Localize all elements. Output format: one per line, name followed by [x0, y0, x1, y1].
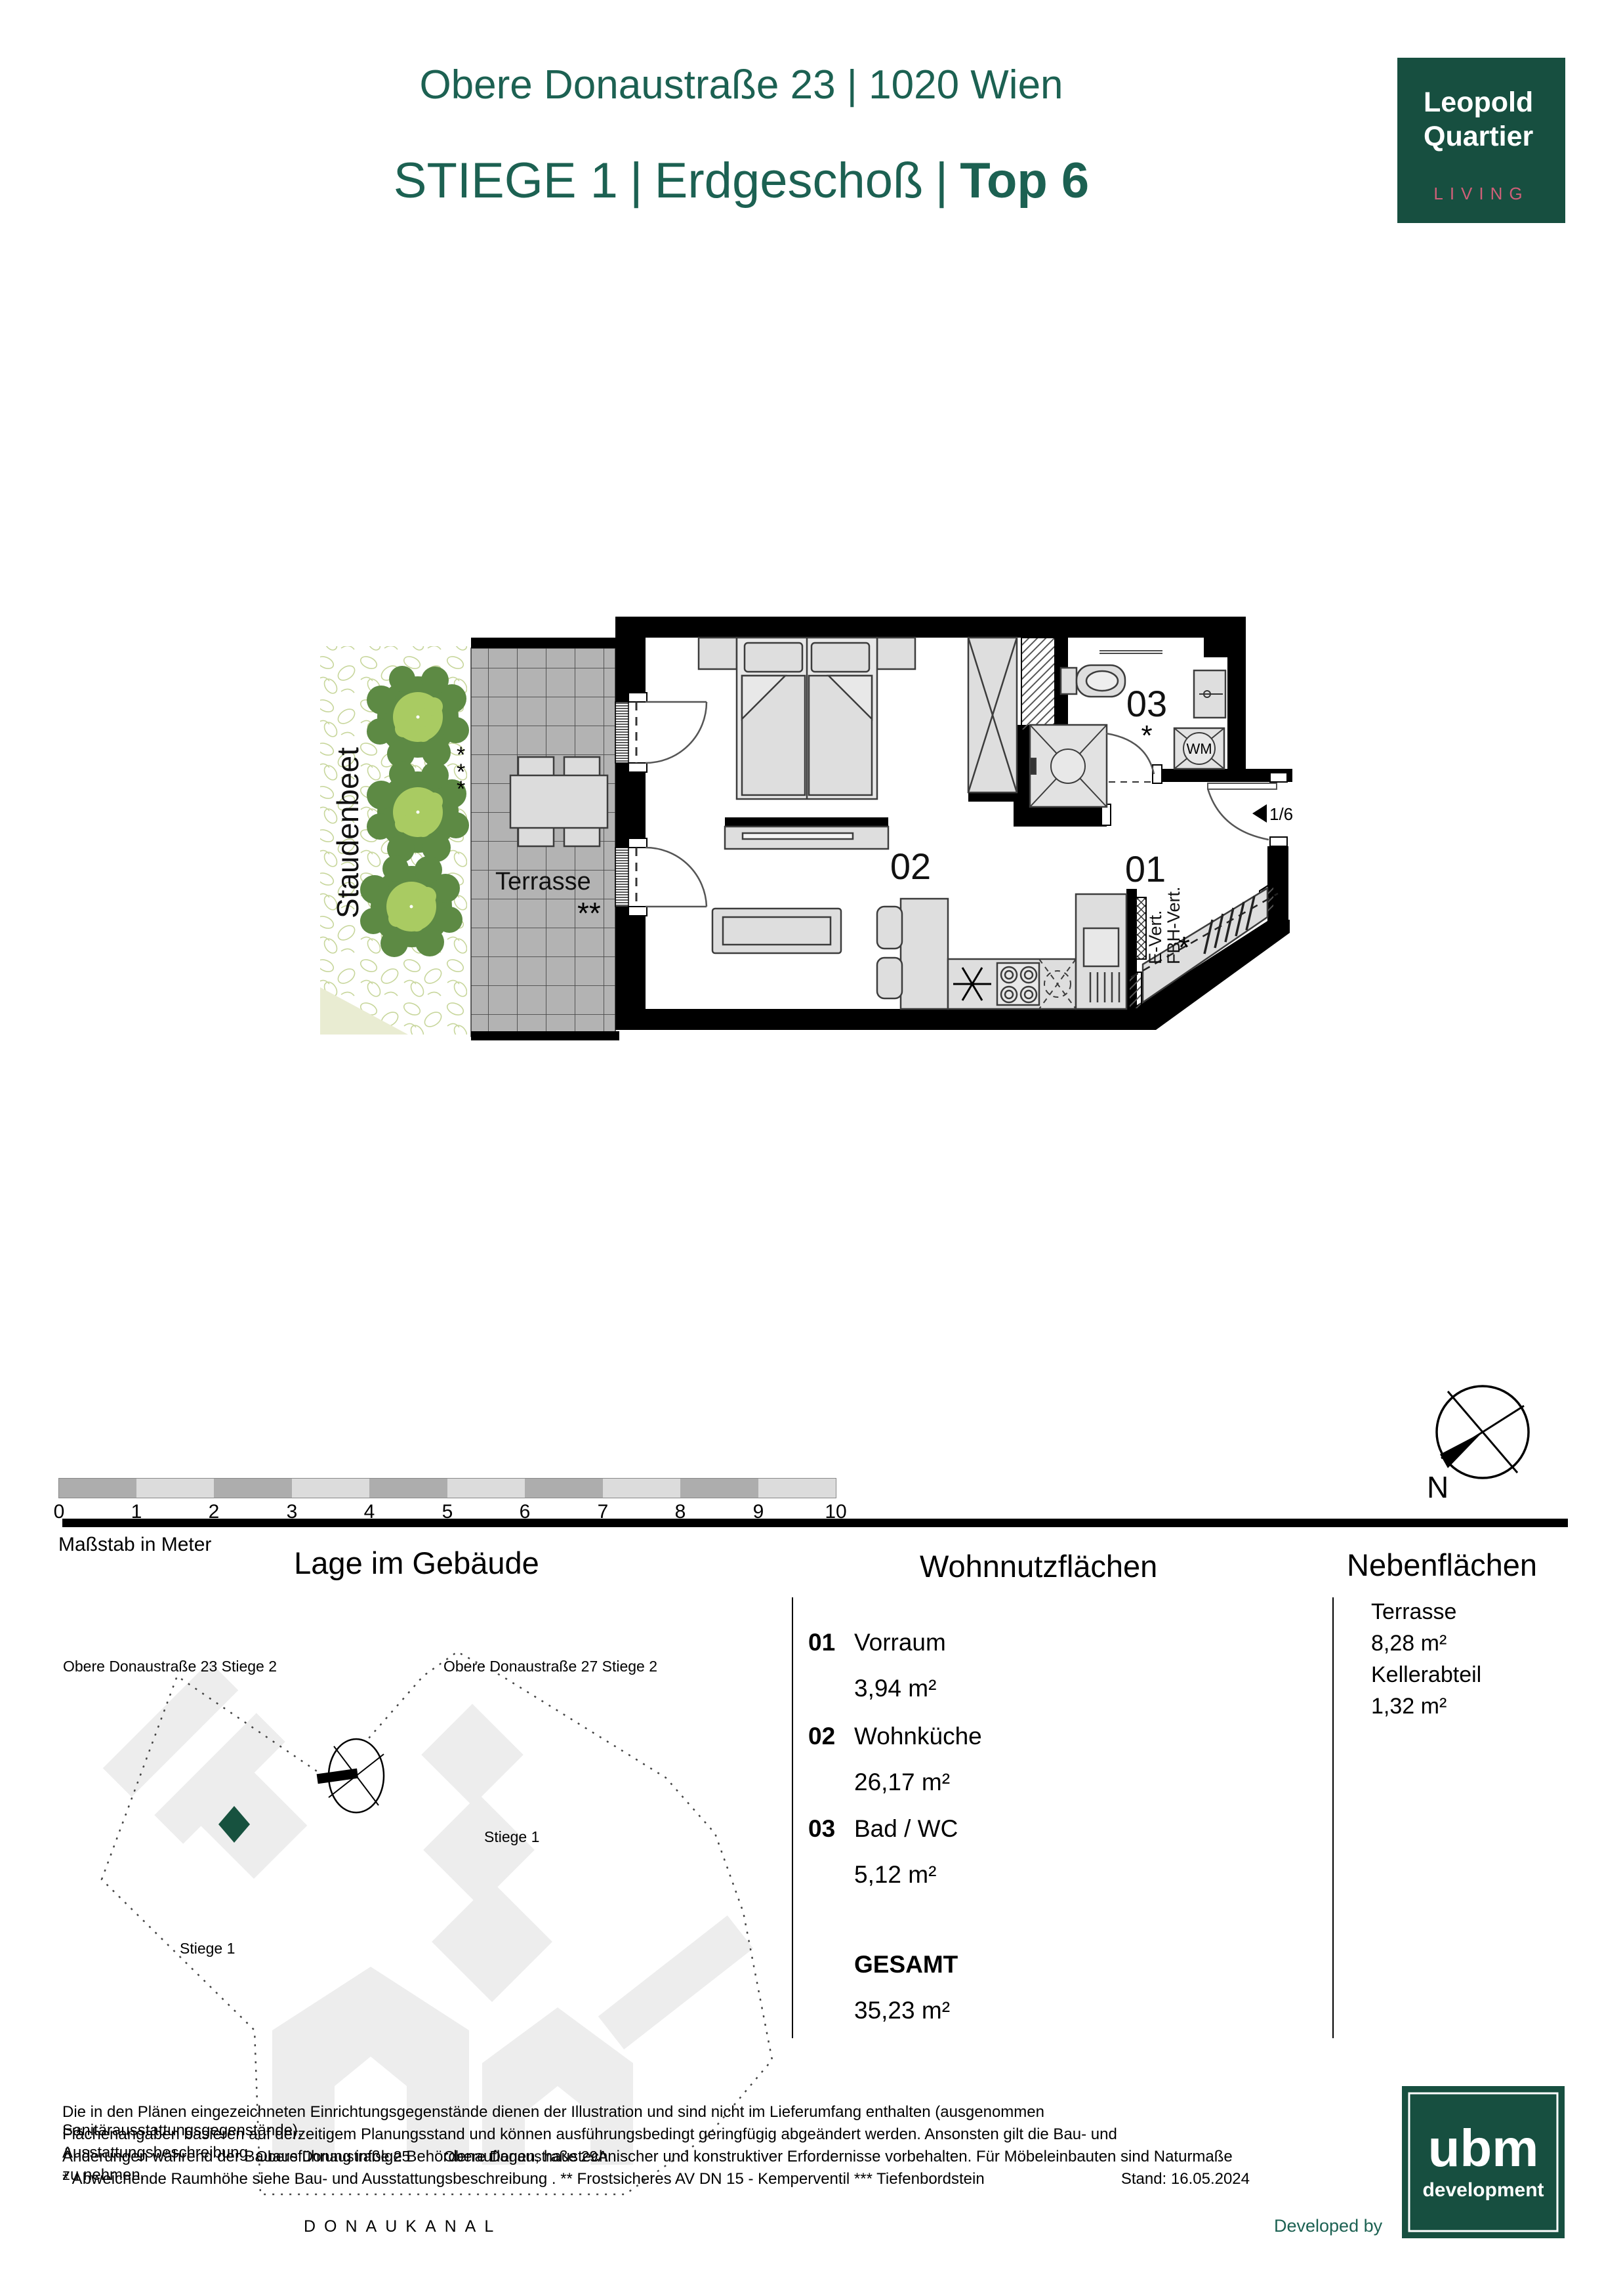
neben-title: Nebenflächen — [1347, 1547, 1537, 1583]
wohn-title: Wohnnutzflächen — [920, 1548, 1157, 1584]
oven — [1084, 928, 1119, 966]
developed-by-label: Developed by — [1274, 2216, 1382, 2236]
terrace-chair — [564, 827, 600, 846]
title-stiege: STIEGE 1 — [394, 153, 618, 209]
installation-shaft — [1136, 897, 1146, 959]
door-jambs — [628, 693, 1287, 916]
entry-door-leaf — [1208, 783, 1277, 789]
towel-rail — [1099, 651, 1162, 653]
wohn-total-label: GESAMT — [854, 1951, 958, 1978]
room-label-02: 02 — [890, 846, 931, 887]
dining-chair — [877, 907, 902, 949]
wohn-item-no: 01 — [808, 1629, 835, 1656]
title-separator: | — [923, 153, 960, 209]
wohn-item-no: 03 — [808, 1815, 835, 1843]
title-separator: | — [618, 153, 655, 209]
compass: N — [1420, 1374, 1545, 1506]
plan-date: Stand: 16.05.2024 — [1109, 2170, 1250, 2188]
site-compass — [317, 1739, 384, 1813]
wohn-item-area: 5,12 m² — [854, 1861, 936, 1889]
neben-item-name: Terrasse — [1371, 1599, 1456, 1625]
dining-table — [901, 899, 948, 1009]
terrace-label: Terrasse — [495, 868, 591, 895]
nightstand — [699, 638, 737, 669]
wohn-item-no: 02 — [808, 1723, 835, 1750]
terrace-chair — [518, 827, 554, 846]
footnote-star-03: * — [1141, 720, 1152, 752]
site-label-stiege1-right: Stiege 1 — [484, 1828, 539, 1845]
logo-living: LIVING — [1397, 184, 1565, 204]
site-label-donaukanal: DONAUKANAL — [304, 2217, 502, 2236]
footnote-stars-2: ** — [577, 896, 601, 930]
scale-seg — [214, 1479, 292, 1498]
terrace-door-glazing — [615, 702, 628, 763]
wohn-item-name: Wohnküche — [854, 1723, 982, 1750]
neben-item-name: Kellerabteil — [1371, 1662, 1481, 1688]
terrace: Terrasse ** — [471, 648, 615, 1036]
column-divider — [1332, 1597, 1334, 2038]
footnote-stars-3c: * — [457, 777, 465, 802]
ubm-logo: ubm development — [1402, 2086, 1565, 2238]
pillow — [811, 643, 869, 672]
ubm-sub: development — [1422, 2179, 1544, 2201]
ubm-wordmark: ubm — [1428, 2119, 1539, 2177]
staudenbeet-bed: Staudenbeet * * * — [320, 646, 469, 1035]
room-label-03: 03 — [1126, 683, 1167, 724]
room-label-01: 01 — [1125, 848, 1166, 890]
terrace-chair — [564, 757, 600, 777]
door-ratio-label: 1/6 — [1269, 804, 1293, 824]
scale-seg — [680, 1479, 758, 1498]
terrace-door-glazing — [615, 848, 628, 907]
nightstand — [877, 638, 915, 669]
compass-north-label: N — [1427, 1470, 1448, 1504]
terrace-table — [510, 775, 607, 828]
scale-seg — [136, 1479, 214, 1498]
title-floor: Erdgeschoß — [655, 153, 924, 209]
wohn-total-area: 35,23 m² — [854, 1997, 950, 2024]
footer-line: * Abweichende Raumhöhe siehe Bau- und Au… — [62, 2170, 1086, 2188]
logo-line2: Quartier — [1424, 121, 1533, 153]
pillow — [745, 643, 802, 672]
dining-chair — [877, 958, 902, 998]
wohn-item-name: Bad / WC — [854, 1815, 958, 1843]
floorplan: Staudenbeet * * * Terrasse ** — [315, 610, 1299, 1051]
wohn-item-area: 3,94 m² — [854, 1675, 936, 1702]
evert-label: E-Vert. — [1145, 910, 1165, 964]
logo-line1: Leopold — [1424, 87, 1533, 119]
scale-seg — [758, 1479, 836, 1498]
wohn-item-name: Vorraum — [854, 1629, 946, 1656]
site-label-od23: Obere Donaustraße 23 Stiege 2 — [63, 1658, 277, 1675]
site-buildings — [103, 1662, 753, 2165]
scale-seg — [447, 1479, 525, 1498]
wohn-item-area: 26,17 m² — [854, 1769, 950, 1796]
neben-item-area: 1,32 m² — [1371, 1694, 1447, 1719]
page-title-address: Obere Donaustraße 23 | 1020 Wien — [262, 62, 1220, 108]
scale-seg — [525, 1479, 603, 1498]
toilet-bowl — [1086, 671, 1118, 691]
wardrobe-side-hatch — [1129, 972, 1141, 1009]
scale-bar: 0 1 2 3 4 5 6 7 8 9 10 — [58, 1478, 836, 1498]
page-title-unit: STIEGE 1|Erdgeschoß|Top 6 — [262, 152, 1220, 209]
staudenbeet-label: Staudenbeet — [331, 747, 365, 918]
section-divider — [62, 1519, 1568, 1527]
column-divider — [792, 1597, 793, 2038]
neben-item-area: 8,28 m² — [1371, 1631, 1447, 1656]
sideboard-slot — [743, 833, 853, 839]
scale-seg — [59, 1479, 136, 1498]
compass-north-wedge — [1440, 1432, 1483, 1468]
site-label-stiege1-left: Stiege 1 — [180, 1940, 235, 1957]
scale-seg — [292, 1479, 369, 1498]
wm-label: WM — [1186, 741, 1212, 757]
title-top-number: Top 6 — [960, 153, 1089, 209]
scale-seg — [369, 1479, 447, 1498]
terrace-chair — [518, 757, 554, 777]
leopold-quartier-logo: Leopold Quartier LIVING — [1397, 58, 1565, 223]
shaft-hatched — [1021, 638, 1055, 730]
site-label-od27: Obere Donaustraße 27 Stiege 2 — [443, 1658, 657, 1675]
toilet-tank — [1061, 668, 1077, 694]
fbhvert-label: FBH-Vert. — [1164, 886, 1183, 964]
sofa-seat — [723, 917, 831, 945]
scale-seg — [603, 1479, 680, 1498]
door-direction-icon — [1252, 804, 1267, 823]
